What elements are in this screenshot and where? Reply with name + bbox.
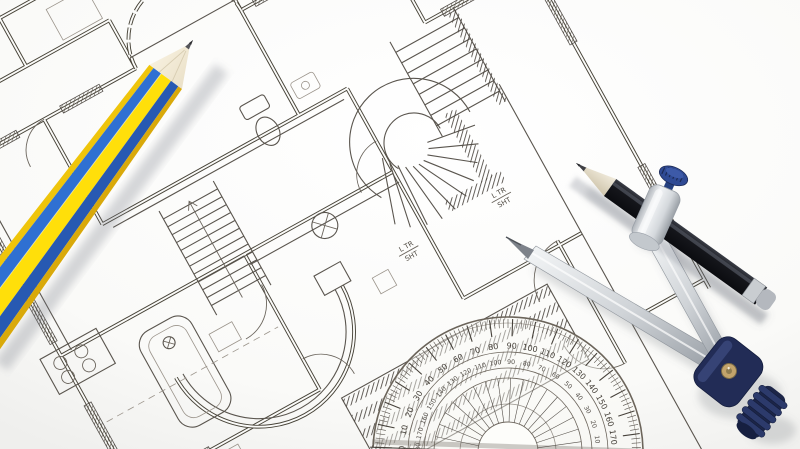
blueprint-photo-scene: L TR SHT L TR SHT 0180101702016030150401… <box>0 0 800 449</box>
protractor-tick <box>508 319 509 328</box>
protractor-degree-inner: 90 <box>507 359 515 366</box>
protractor-degree-outer: 80 <box>488 342 499 352</box>
protractor-degree-outer: 0 <box>397 446 406 449</box>
protractor-degree-outer: 90 <box>506 341 516 350</box>
protractor-degree-inner: 180 <box>415 443 422 449</box>
protractor-tick <box>375 447 392 448</box>
protractor-tick <box>512 319 513 336</box>
protractor-degree-inner: 10 <box>593 435 601 444</box>
scene-canvas: L TR SHT L TR SHT 0180101702016030150401… <box>0 0 800 449</box>
